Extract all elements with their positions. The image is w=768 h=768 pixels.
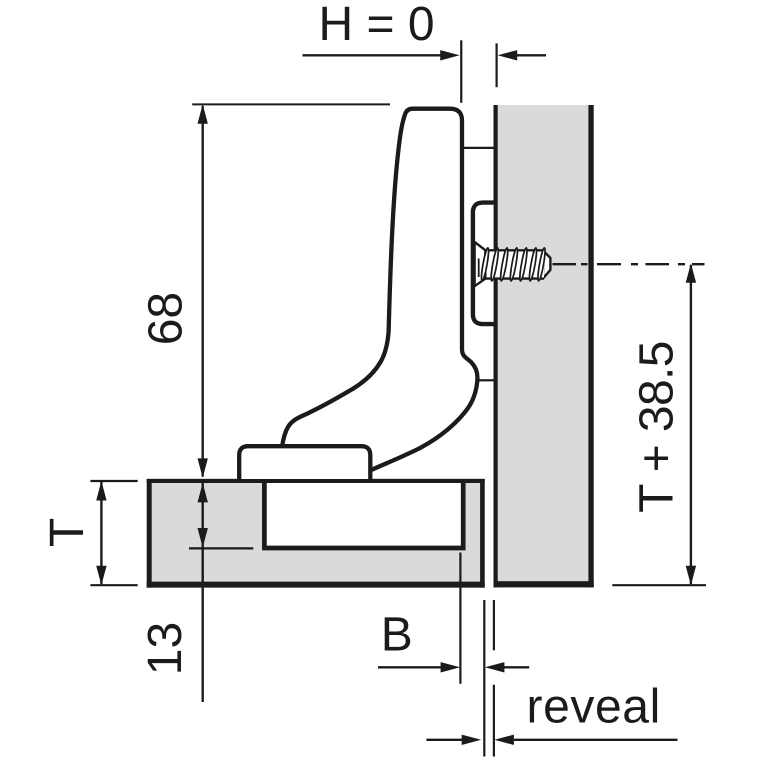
svg-text:B: B xyxy=(381,608,413,661)
svg-text:H = 0: H = 0 xyxy=(319,0,435,51)
svg-text:68: 68 xyxy=(140,292,193,345)
svg-text:reveal: reveal xyxy=(527,681,661,734)
svg-text:13: 13 xyxy=(139,622,192,675)
svg-text:T + 38.5: T + 38.5 xyxy=(631,341,684,513)
svg-text:T: T xyxy=(41,518,94,547)
